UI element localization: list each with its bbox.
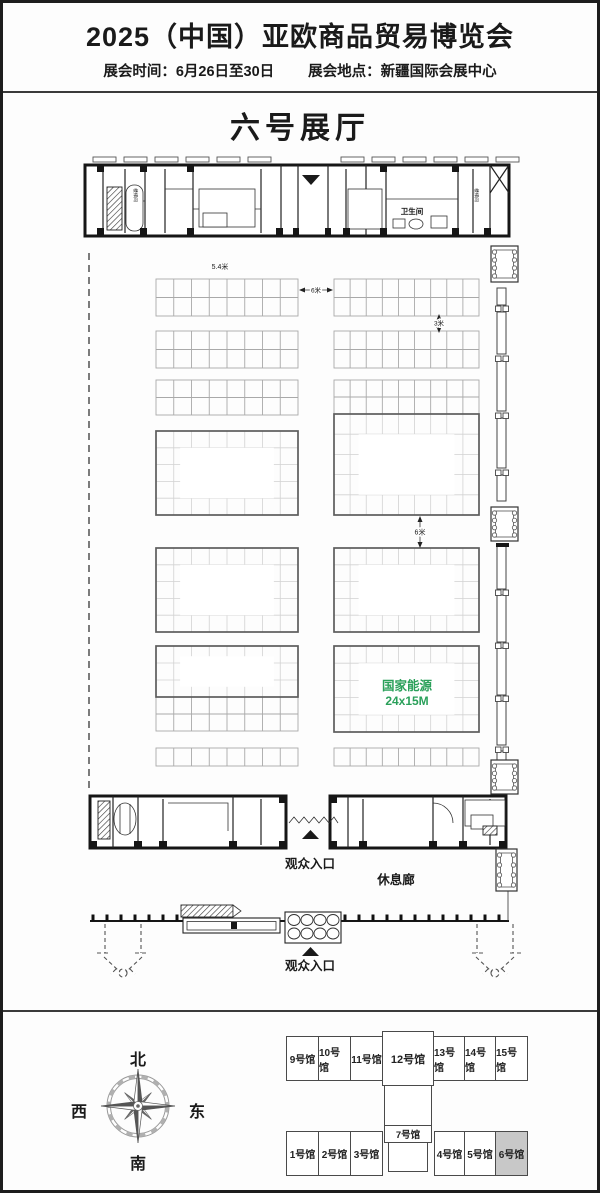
compass-north-label: 北 (121, 1046, 155, 1070)
featured-booth-size: 24x15M (385, 694, 428, 708)
corner-fan-right (469, 924, 521, 977)
aisle-6m-vertical-label: 6米 (415, 528, 426, 537)
expo-subtitle: 展会时间：6月26日至30日展会地点：新疆国际会展中心 (3, 60, 597, 81)
stairwell-right-label: 楼梯间 (473, 188, 480, 202)
ceiling-height-label: 5.4米 (212, 262, 229, 271)
header-divider (3, 91, 597, 93)
expo-schedule: 展会时间：6月26日至30日 (103, 64, 274, 80)
aisle-3m-label: 3米 (434, 319, 445, 328)
dimension-arrows (299, 288, 442, 549)
hall-map-connector-lower (388, 1142, 428, 1172)
restroom-label: 卫生间 (401, 206, 424, 216)
hall-box-9: 9号馆 (286, 1036, 319, 1081)
hall-box-10: 10号馆 (318, 1036, 351, 1081)
stair-hatch (107, 187, 122, 230)
featured-booth-name: 国家能源 (382, 678, 433, 693)
hall-box-15: 15号馆 (495, 1036, 528, 1081)
entrance-arrow-bottom-icon (302, 947, 319, 956)
hall-box-7: 7号馆 (384, 1125, 432, 1143)
aisle-6m-label: 6米 (311, 286, 322, 295)
escalator (181, 905, 233, 917)
hall-box-4: 4号馆 (434, 1131, 465, 1176)
floor-plan: 卫生间 楼梯间 楼梯间 5.4米 6米 3米 6米 国家能源 24x15M 观众… (3, 151, 600, 1011)
hall-box-1: 1号馆 (286, 1131, 319, 1176)
expo-title: 2025（中国）亚欧商品贸易博览会 (3, 15, 597, 54)
compass-west-label: 西 (62, 1098, 96, 1122)
hall-box-11: 11号馆 (350, 1036, 383, 1081)
hall-box-13: 13号馆 (433, 1036, 465, 1081)
expo-floorplan-page: 2025（中国）亚欧商品贸易博览会 展会时间：6月26日至30日展会地点：新疆国… (0, 0, 600, 1193)
hall-box-14: 14号馆 (464, 1036, 496, 1081)
south-wall (90, 796, 506, 848)
hall-box-3: 3号馆 (350, 1131, 383, 1176)
hall-box-12: 12号馆 (382, 1031, 434, 1086)
hall-box-2: 2号馆 (318, 1131, 351, 1176)
compass-east-label: 东 (180, 1098, 214, 1122)
stairwell-left-label: 楼梯间 (132, 188, 139, 202)
legend-divider (3, 1010, 597, 1012)
hall-map-connector-upper (384, 1085, 432, 1126)
visitor-entrance-bottom-label: 观众入口 (285, 958, 335, 973)
compass-south-label: 南 (121, 1150, 155, 1174)
north-wall (85, 165, 509, 236)
expo-venue: 展会地点：新疆国际会展中心 (308, 64, 497, 80)
entrance-arrow-top-icon (302, 830, 319, 839)
hall-title: 六号展厅 (3, 103, 597, 147)
hall-box-6-highlighted: 6号馆 (495, 1131, 528, 1176)
rest-corridor-label: 休息廊 (376, 872, 415, 887)
hall-box-5: 5号馆 (464, 1131, 496, 1176)
toilet-fixture (409, 219, 423, 229)
corner-fan-left (97, 924, 149, 977)
visitor-entrance-top-label: 观众入口 (285, 856, 335, 871)
